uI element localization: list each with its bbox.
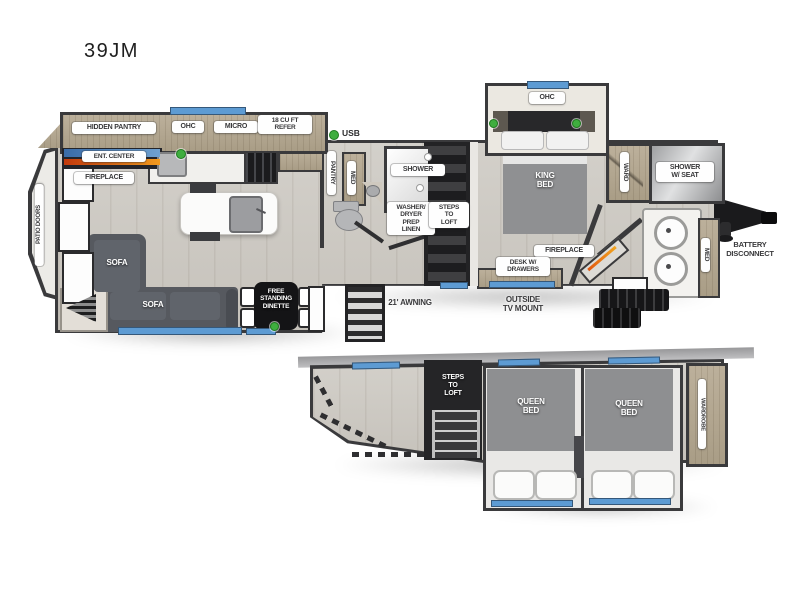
loft-ladder [345, 284, 385, 342]
reading-light [489, 119, 498, 128]
pillow [493, 470, 535, 500]
loft-window [589, 498, 671, 505]
bedroom-window [527, 81, 569, 89]
shower-label: SHOWER [391, 164, 445, 176]
pillow [546, 131, 589, 150]
ohc-label-kitchen: OHC [172, 121, 204, 133]
usb-indicator [329, 130, 339, 140]
queen-bed-1-label: QUEEN BED [487, 398, 575, 416]
awning-label: 21' AWNING [370, 298, 450, 307]
loft-window [491, 500, 573, 507]
shower-drain [416, 184, 424, 192]
shower-head [424, 153, 432, 161]
pillow [501, 131, 544, 150]
island-stool [190, 184, 216, 193]
fireplace-label-bedroom: FIREPLACE [534, 245, 594, 257]
hitch-coupler [761, 212, 777, 224]
battery-disconnect-label: BATTERY DISCONNECT [712, 241, 788, 258]
desk-label: DESK W/ DRAWERS [496, 257, 550, 276]
island-stool [190, 232, 220, 241]
nightstand [580, 111, 595, 132]
ent-center-label: ENT. CENTER [82, 151, 146, 162]
wardrobe-label: WARDROBE [698, 379, 706, 449]
refrigerator-label: 18 CU FT REFER [258, 115, 312, 134]
corner-cabinet [38, 122, 62, 148]
med-label-front: MED [701, 238, 710, 272]
wardrobe-cabinet [686, 363, 728, 467]
stove [244, 151, 278, 184]
king-bed-label: KING BED [503, 172, 587, 190]
island-sink [229, 196, 263, 233]
corner-sink-basin [366, 185, 380, 197]
sofa-label: SOFA [92, 259, 142, 268]
hidden-pantry-label: HIDDEN PANTRY [72, 122, 156, 134]
steps-to-loft-label-loft: STEPS TO LOFT [424, 374, 482, 397]
ward-label: WARD [620, 152, 629, 192]
page-title: 39JM [84, 40, 139, 63]
vanity-sink [654, 252, 688, 286]
steps-to-loft-label-main: STEPS TO LOFT [429, 202, 469, 228]
kitchen-window [170, 107, 246, 115]
loft-window [608, 356, 660, 364]
patio-doors-label: PATIO DOORS [35, 184, 44, 266]
sofa-label: SOFA [128, 301, 178, 310]
loft-window [352, 361, 400, 369]
entry-door [308, 286, 325, 332]
reading-light [572, 119, 581, 128]
ohc-label-bedroom: OHC [529, 92, 565, 104]
pillow [535, 470, 577, 500]
loft-step-treads [432, 410, 480, 458]
entry-steps [593, 308, 641, 328]
dinette-label: FREE STANDING DINETTE [254, 288, 298, 310]
shower-seat-label: SHOWER W/ SEAT [656, 162, 714, 182]
sofa-armrest [226, 289, 238, 331]
queen-bed-2-label: QUEEN BED [585, 400, 673, 418]
vanity-sink [654, 216, 688, 250]
micro-label: MICRO [214, 121, 258, 133]
patio-door-panel [58, 202, 90, 252]
vanity-sink-drain [666, 264, 671, 269]
patio-door-panel [62, 252, 94, 304]
vanity-sink-drain [666, 228, 671, 233]
pantry-label: PANTRY [327, 151, 336, 195]
washer-dryer-label: WASHER/ DRYER PREP LINEN [387, 202, 435, 235]
awning-strip [118, 327, 242, 335]
floorplan-39jm: 39JM PATIO DOORS HIDDEN PANTRY OHC MICRO… [0, 0, 800, 600]
med-label-mid: MED [347, 161, 356, 195]
usb-indicator-kitchen [176, 149, 186, 159]
usb-indicator-dinette [270, 322, 279, 331]
steps-wall [470, 142, 478, 286]
pillow [591, 470, 633, 500]
outside-tv-label: OUTSIDE TV MOUNT [478, 295, 568, 313]
window-strip [489, 281, 555, 288]
pillow [633, 470, 675, 500]
fireplace-label-living: FIREPLACE [74, 172, 134, 184]
window-strip [440, 282, 468, 289]
loft-window [498, 359, 540, 367]
usb-label: USB [342, 128, 360, 138]
